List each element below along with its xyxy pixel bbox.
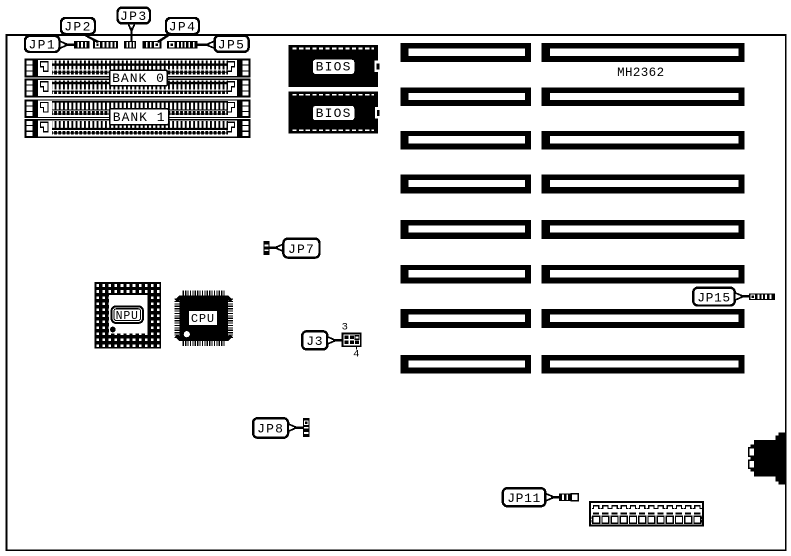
svg-text:BANK 0: BANK 0 xyxy=(112,71,165,86)
svg-text:JP7: JP7 xyxy=(288,242,315,257)
svg-text:JP3: JP3 xyxy=(120,9,148,24)
svg-text:JP5: JP5 xyxy=(218,37,246,52)
svg-text:JP15: JP15 xyxy=(697,290,731,305)
svg-text:JP2: JP2 xyxy=(64,20,92,35)
svg-text:JP4: JP4 xyxy=(169,20,197,35)
svg-text:MH2362: MH2362 xyxy=(617,66,664,80)
svg-text:BIOS: BIOS xyxy=(316,106,352,121)
svg-text:JP8: JP8 xyxy=(257,422,284,437)
svg-text:4: 4 xyxy=(353,348,359,360)
svg-text:CPU: CPU xyxy=(191,312,215,326)
svg-text:JP11: JP11 xyxy=(507,491,541,506)
svg-text:JP1: JP1 xyxy=(28,38,56,53)
svg-text:J3: J3 xyxy=(306,334,323,349)
svg-text:BANK 1: BANK 1 xyxy=(113,110,166,125)
svg-text:BIOS: BIOS xyxy=(316,60,352,75)
svg-text:3: 3 xyxy=(342,322,348,334)
svg-text:NPU: NPU xyxy=(116,310,139,323)
